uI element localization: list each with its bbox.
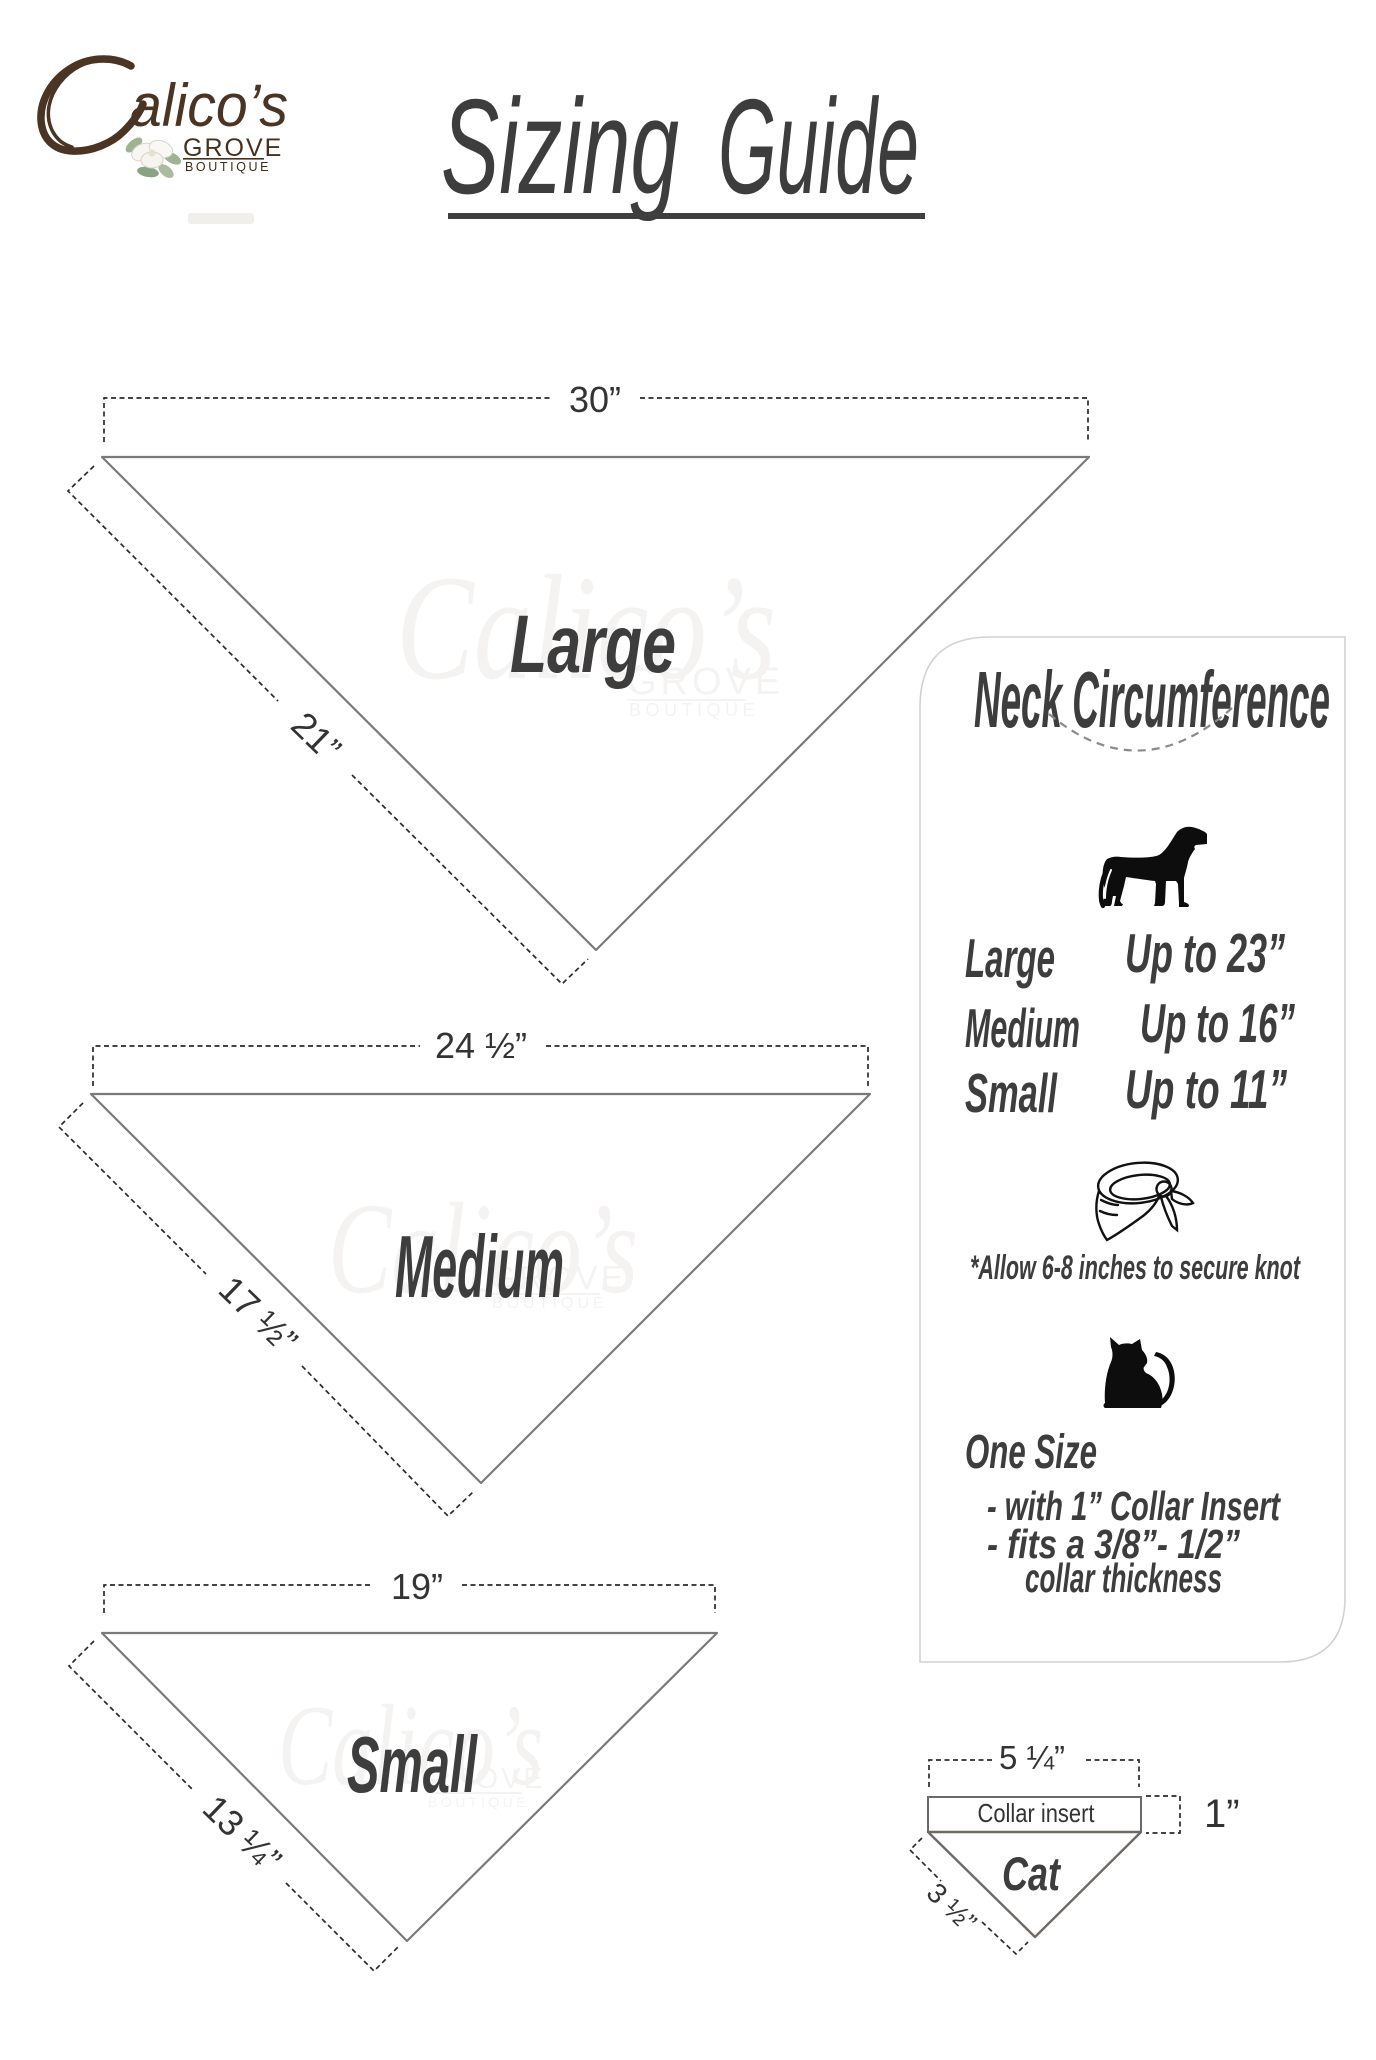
svg-text:GROVE: GROVE bbox=[183, 134, 283, 162]
svg-text:One Size: One Size bbox=[965, 1426, 1097, 1479]
svg-text:Large: Large bbox=[965, 927, 1055, 989]
svg-text:5 ¼”: 5 ¼” bbox=[999, 1739, 1065, 1776]
svg-text:Large: Large bbox=[510, 599, 676, 690]
svg-text:Sizing: Sizing bbox=[441, 71, 679, 222]
svg-text:alico’s: alico’s bbox=[130, 72, 288, 139]
svg-text:Up to 23”: Up to 23” bbox=[1125, 922, 1285, 984]
svg-text:Up to 16”: Up to 16” bbox=[1140, 992, 1295, 1054]
svg-text:24 ½”: 24 ½” bbox=[435, 1025, 527, 1066]
svg-text:Small: Small bbox=[347, 1720, 478, 1809]
svg-text:*Allow 6-8 inches to secure kn: *Allow 6-8 inches to secure knot bbox=[970, 1249, 1301, 1287]
svg-text:Cat: Cat bbox=[1002, 1847, 1062, 1900]
svg-text:Medium: Medium bbox=[395, 1217, 564, 1316]
svg-text:Collar insert: Collar insert bbox=[978, 1798, 1096, 1828]
svg-text:Neck Circumference: Neck Circumference bbox=[974, 655, 1330, 744]
svg-text:Medium: Medium bbox=[965, 997, 1080, 1059]
svg-text:BOUTIQUE: BOUTIQUE bbox=[629, 700, 759, 720]
svg-text:Small: Small bbox=[965, 1062, 1058, 1124]
svg-text:Up to 11”: Up to 11” bbox=[1125, 1058, 1287, 1120]
svg-text:19”: 19” bbox=[391, 1566, 443, 1607]
svg-text:Guide: Guide bbox=[718, 71, 919, 222]
svg-text:30”: 30” bbox=[569, 379, 621, 420]
svg-text:collar thickness: collar thickness bbox=[1025, 1555, 1222, 1601]
svg-text:1”: 1” bbox=[1204, 1792, 1240, 1836]
svg-text:BOUTIQUE: BOUTIQUE bbox=[185, 160, 271, 174]
